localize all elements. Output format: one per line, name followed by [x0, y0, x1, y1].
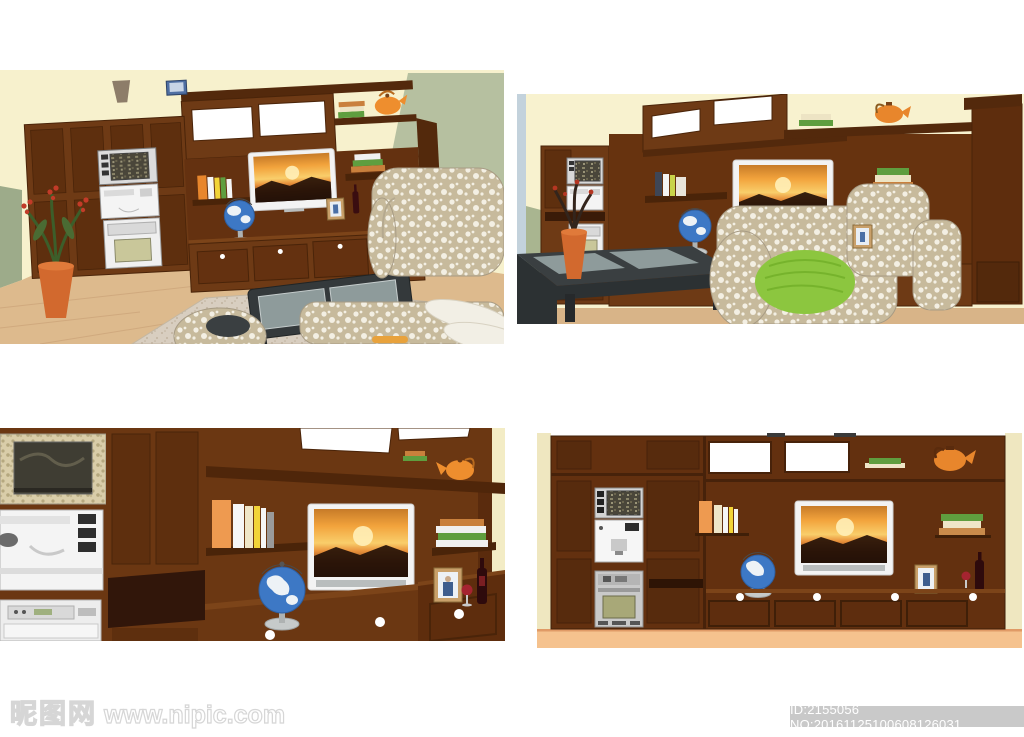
window-panel	[709, 442, 771, 473]
picture-frame	[327, 198, 345, 220]
render-perspective-room-svg	[0, 70, 504, 344]
tv-sunset	[248, 149, 337, 214]
microwave	[567, 158, 603, 184]
tv-sunset	[308, 504, 414, 590]
picture-frame	[915, 565, 937, 593]
picture-frame	[434, 568, 462, 602]
render-detail-view-svg	[0, 428, 505, 641]
microwave	[98, 148, 158, 185]
render-close-perspective	[517, 94, 1024, 324]
tv-sunset	[795, 501, 893, 575]
microwave	[595, 488, 643, 518]
microwave	[0, 434, 106, 504]
render-front-elevation-svg	[537, 433, 1022, 648]
wall-cream	[537, 433, 551, 631]
render-detail-view	[0, 428, 505, 641]
render-perspective-room	[0, 70, 504, 344]
picture-frame	[853, 225, 872, 248]
book-shelf	[695, 533, 749, 536]
books	[338, 101, 366, 118]
nipic-watermark: 昵图网 www.nipic.com	[10, 692, 285, 731]
oven	[0, 600, 101, 641]
books	[436, 519, 488, 547]
render-front-elevation	[537, 433, 1022, 648]
floor	[537, 629, 1022, 648]
appliance	[100, 184, 160, 219]
books	[350, 153, 385, 173]
oven	[103, 218, 161, 269]
window-panel	[785, 442, 849, 472]
wall-cream	[1005, 433, 1022, 631]
collage-canvas: 昵图网 www.nipic.com ID:2155056 NO:20161125…	[0, 0, 1024, 737]
armchair	[368, 168, 504, 278]
books	[939, 514, 985, 535]
render-close-perspective-svg	[517, 94, 1024, 324]
coffee-machine	[595, 520, 643, 562]
cabinet-column	[106, 428, 206, 641]
books	[799, 114, 833, 126]
oven	[595, 571, 643, 627]
id-watermark-bar: ID:2155056 NO:20161125100608126031	[790, 706, 1024, 727]
green-cushion	[755, 250, 855, 314]
appliance	[0, 510, 103, 590]
book-shelf	[935, 535, 991, 538]
nipic-url-text: www.nipic.com	[104, 701, 285, 730]
books	[403, 451, 427, 461]
books	[865, 458, 905, 468]
nipic-logo-text: 昵图网	[10, 692, 97, 731]
photo-frame-top	[166, 80, 187, 95]
window-panel	[300, 428, 392, 453]
id-watermark-text: ID:2155056 NO:20161125100608126031	[790, 702, 1024, 732]
